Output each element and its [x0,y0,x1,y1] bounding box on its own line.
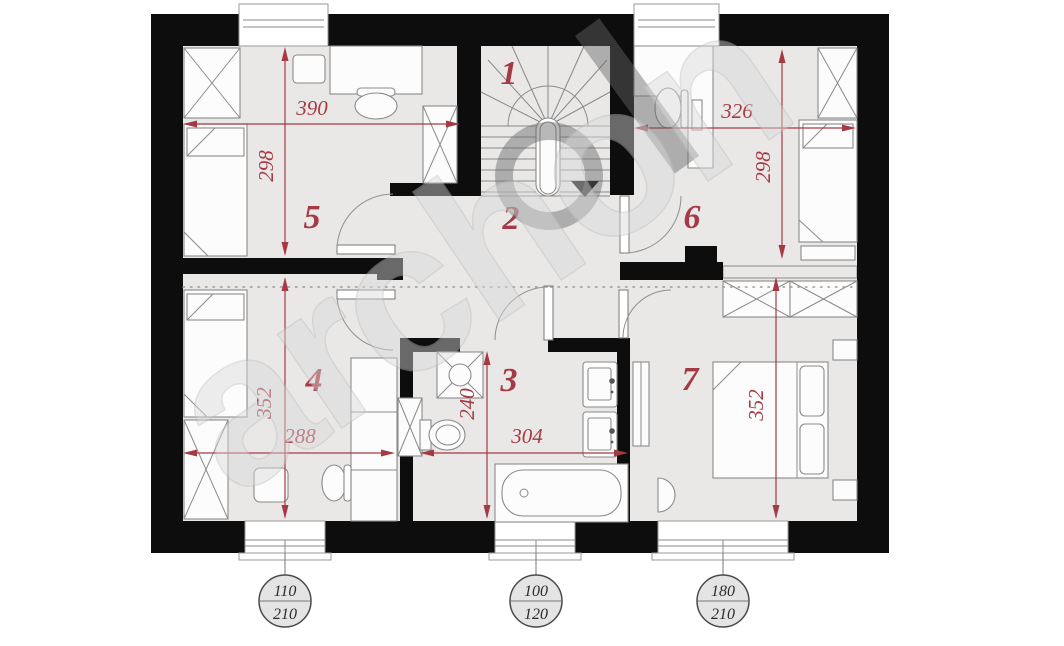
window-tag-width: 110 [274,583,297,600]
dim-label: 298 [254,150,278,182]
nightstand-icon [833,480,857,500]
double-bed-icon [713,362,828,478]
shelf-icon [633,362,649,446]
wardrobe-icon [184,48,240,118]
window-tag-height: 120 [524,606,548,623]
window-bathroom [489,521,581,560]
dim-label: 352 [744,389,768,422]
floor-plan-page: 390 298 326 298 352 288 240 [0,0,1064,646]
window-tag-height: 210 [711,606,735,623]
window-tag-1: 110 210 [259,553,311,627]
sink-icon [583,362,617,407]
cabinet-icon [293,55,325,83]
room-number-7: 7 [682,361,701,398]
floor-plan-drawing: 390 298 326 298 352 288 240 [0,0,1064,646]
thin-partition-6-7 [723,266,857,278]
window-tag-width: 100 [524,583,548,600]
bathtub-icon [495,464,628,522]
window-tag-3: 180 210 [697,553,749,627]
dim-label: 304 [510,424,543,448]
nightstand-icon [801,246,855,260]
window-tag-height: 210 [273,606,297,623]
bed-icon [184,124,247,256]
sink-icon [583,412,617,457]
wardrobe-icon [790,281,857,317]
wardrobe-icon [723,281,790,317]
nightstand-icon [833,340,857,360]
window-tag-2: 100 120 [510,553,562,627]
dim-label: 390 [295,96,328,120]
wardrobe-icon [818,48,857,118]
window-tag-width: 180 [711,583,735,600]
dormer-window-room5 [239,4,328,46]
